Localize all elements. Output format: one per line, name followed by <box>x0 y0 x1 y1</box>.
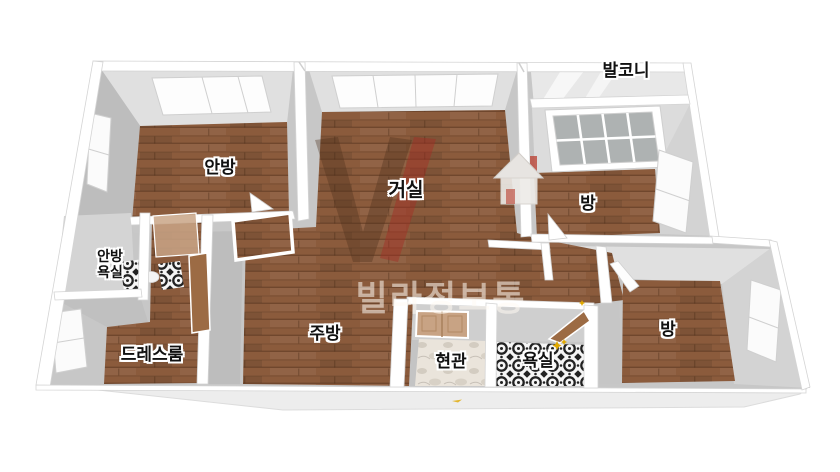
room-label-anbang: 안방 <box>204 158 235 178</box>
corridor-threshold <box>153 213 199 257</box>
window-bang-bottom-right <box>747 280 781 362</box>
room-label-jubang: 주방 <box>309 324 340 344</box>
room-label-hyeongwan: 현관 <box>435 352 466 372</box>
corridor-door-leaf <box>189 253 210 333</box>
floor-bang-bottom-right <box>622 280 735 383</box>
wall-anbang-yoksil-right <box>138 213 150 300</box>
floor-plan-graphic <box>0 0 840 472</box>
window-bang-top-right <box>653 150 693 233</box>
room-label-anbang-yoksil-line1: 안방 <box>97 248 123 264</box>
window-balcony-grid <box>545 106 668 172</box>
watermark-text: 빌라정보통 <box>355 271 526 322</box>
room-label-anbang-yoksil-line2: 욕실 <box>97 264 123 280</box>
room-label-bang-bottom-right: 방 <box>660 320 676 340</box>
room-label-yoksil: 욕실 <box>522 351 553 371</box>
window-geosil-back <box>332 74 498 108</box>
anbang-doorway <box>233 213 293 260</box>
room-label-anbang-yoksil: 안방 욕실 <box>97 248 123 280</box>
room-label-geosil: 거실 <box>389 180 424 202</box>
floor-plan-3d: 빌라정보통 안방 거실 발코니 방 방 안방 욕실 드레스룸 주방 현관 욕실 <box>0 0 840 472</box>
room-label-balcony: 발코니 <box>603 61 650 81</box>
wall-outer-top <box>93 61 688 72</box>
window-anbang-back <box>152 76 271 115</box>
room-label-dressroom: 드레스룸 <box>121 345 184 365</box>
room-label-bang-top-right: 방 <box>580 194 596 214</box>
